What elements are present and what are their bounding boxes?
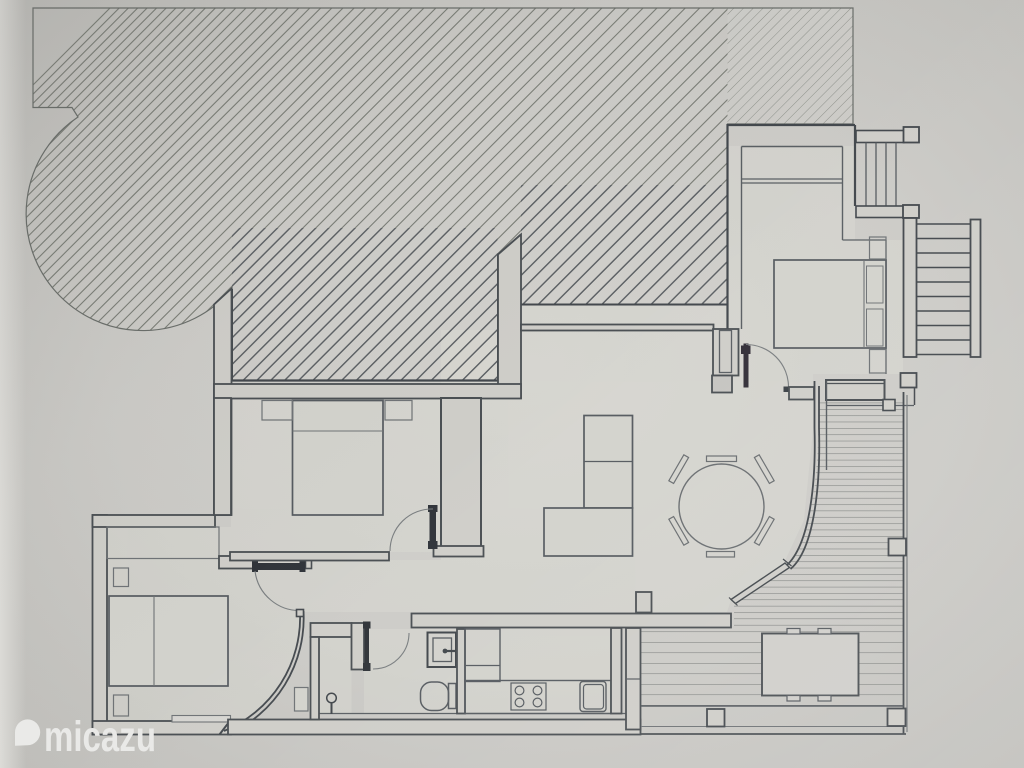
svg-text:micazu: micazu <box>44 713 156 761</box>
